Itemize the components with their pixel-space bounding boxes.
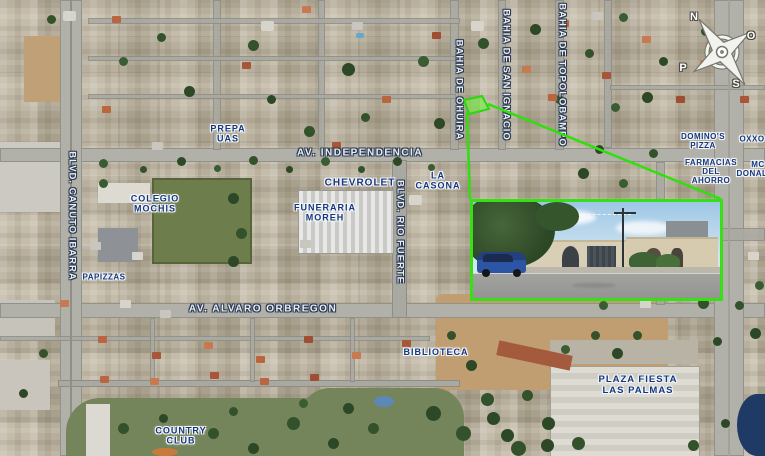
colegio-sports-field bbox=[152, 178, 252, 264]
label-line: FUNERARIA bbox=[294, 203, 356, 213]
label-line: DOMINO'S bbox=[681, 132, 725, 141]
label-funeraria-moreh: FUNERARIAMOREH bbox=[294, 203, 356, 224]
photo-car-wheel bbox=[482, 269, 490, 277]
label-line: OXXO bbox=[739, 134, 764, 143]
label-line: PREPA bbox=[210, 124, 245, 134]
colegio-gym-building bbox=[98, 228, 138, 262]
street-label-blvd-canuto-ibarra: BLVD. CANUTO IBARRA bbox=[67, 151, 78, 280]
road-residential bbox=[88, 56, 456, 61]
label-chevrolet: CHEVROLET bbox=[325, 177, 396, 189]
label-biblioteca: BIBLIOTECA bbox=[404, 347, 469, 357]
property-highlight-polygon bbox=[464, 96, 489, 114]
label-oxxo: OXXO bbox=[739, 134, 764, 143]
label-line: DONALDS bbox=[736, 169, 765, 178]
label-line: UAS bbox=[210, 134, 245, 144]
street-label-blvd-rio-fuerte: BLVD. RIO FUERTE bbox=[395, 180, 406, 284]
label-country-club: COUNTRYCLUB bbox=[155, 426, 206, 447]
photo-car-wheel bbox=[513, 269, 521, 277]
label-line: MOCHIS bbox=[131, 204, 180, 214]
road-residential bbox=[58, 380, 460, 387]
label-line: CLUB bbox=[155, 436, 206, 446]
tower-building bbox=[86, 404, 110, 456]
dirt-lot bbox=[24, 36, 60, 102]
street-label-bahia-de-san-ignacio: BAHIA DE SAN IGNACIO bbox=[501, 9, 512, 141]
label-line: MOREH bbox=[294, 213, 356, 223]
label-la-casona: LACASONA bbox=[415, 171, 460, 192]
street-label-av-independencia: AV. INDEPENDENCIA bbox=[297, 148, 423, 159]
label-colegio-mochis: COLEGIOMOCHIS bbox=[131, 194, 180, 215]
label-prepa-uas: PREPAUAS bbox=[210, 124, 245, 145]
label-line: MC bbox=[736, 160, 765, 169]
photo-tree-canopy bbox=[535, 202, 579, 231]
property-photo-inset bbox=[470, 199, 723, 301]
label-line: LA bbox=[415, 171, 460, 181]
road-residential bbox=[250, 318, 255, 382]
building-block bbox=[0, 360, 50, 410]
golf-pond bbox=[374, 396, 394, 407]
compass-north-label: N bbox=[690, 11, 698, 23]
compass-south-label: S bbox=[732, 78, 739, 90]
label-line: COLEGIO bbox=[131, 194, 180, 204]
label-line: COUNTRY bbox=[155, 426, 206, 436]
label-line: AHORRO bbox=[685, 177, 737, 186]
label-farmacias-del-ahorro: FARMACIASDELAHORRO bbox=[685, 158, 737, 186]
street-label-bahia-de-ohuira: BAHIA DE OHUIRA bbox=[454, 40, 465, 141]
satellite-map: AV. INDEPENDENCIA AV. ALVARO ORBREGON BL… bbox=[0, 0, 765, 456]
label-plaza-fiesta-las-palmas: PLAZA FIESTALAS PALMAS bbox=[598, 375, 677, 397]
label-line: CHEVROLET bbox=[325, 177, 396, 189]
label-mc-donalds: MCDONALDS bbox=[736, 160, 765, 178]
swimming-pool bbox=[356, 33, 364, 38]
road-residential bbox=[88, 18, 460, 24]
label-papizzas: PAPIZZAS bbox=[83, 272, 126, 281]
compass-east-label: O bbox=[747, 30, 756, 42]
photo-arched-doorway bbox=[562, 246, 579, 267]
label-line: PAPIZZAS bbox=[83, 272, 126, 281]
plaza-parking bbox=[550, 340, 698, 364]
label-line: DEL bbox=[685, 167, 737, 176]
road-residential bbox=[150, 318, 155, 382]
photo-utility-pole bbox=[622, 208, 624, 271]
label-line: CASONA bbox=[415, 181, 460, 191]
label-line: FARMACIAS bbox=[685, 158, 737, 167]
photo-metal-gate bbox=[587, 246, 617, 269]
road-residential bbox=[604, 0, 612, 148]
label-line: BIBLIOTECA bbox=[404, 347, 469, 357]
photo-pole-crossarm bbox=[614, 212, 636, 214]
road-residential bbox=[88, 94, 456, 99]
baseball-diamond bbox=[152, 448, 178, 456]
road-residential bbox=[0, 336, 430, 341]
photo-car-windows bbox=[483, 254, 513, 262]
street-label-av-alvaro-orbregon: AV. ALVARO ORBREGON bbox=[189, 304, 337, 315]
label-line: PIZZA bbox=[681, 141, 725, 150]
road-av-alvaro-orbregon bbox=[0, 303, 765, 318]
compass-west-label: P bbox=[679, 62, 686, 74]
label-dominos-pizza: DOMINO'SPIZZA bbox=[681, 132, 725, 150]
street-label-bahia-de-topolobampo: BAHIA DE TOPOLOBAMPO bbox=[557, 3, 568, 147]
road-residential bbox=[350, 318, 355, 382]
label-line: LAS PALMAS bbox=[598, 386, 677, 397]
